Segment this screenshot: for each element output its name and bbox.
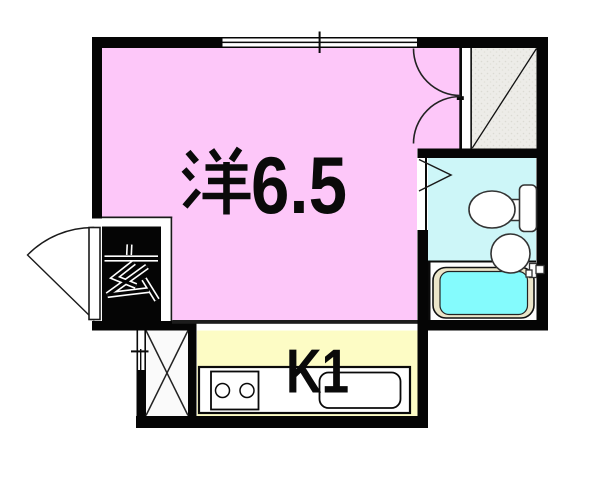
svg-text:K1: K1	[286, 337, 349, 407]
svg-text:6.5: 6.5	[251, 141, 347, 231]
